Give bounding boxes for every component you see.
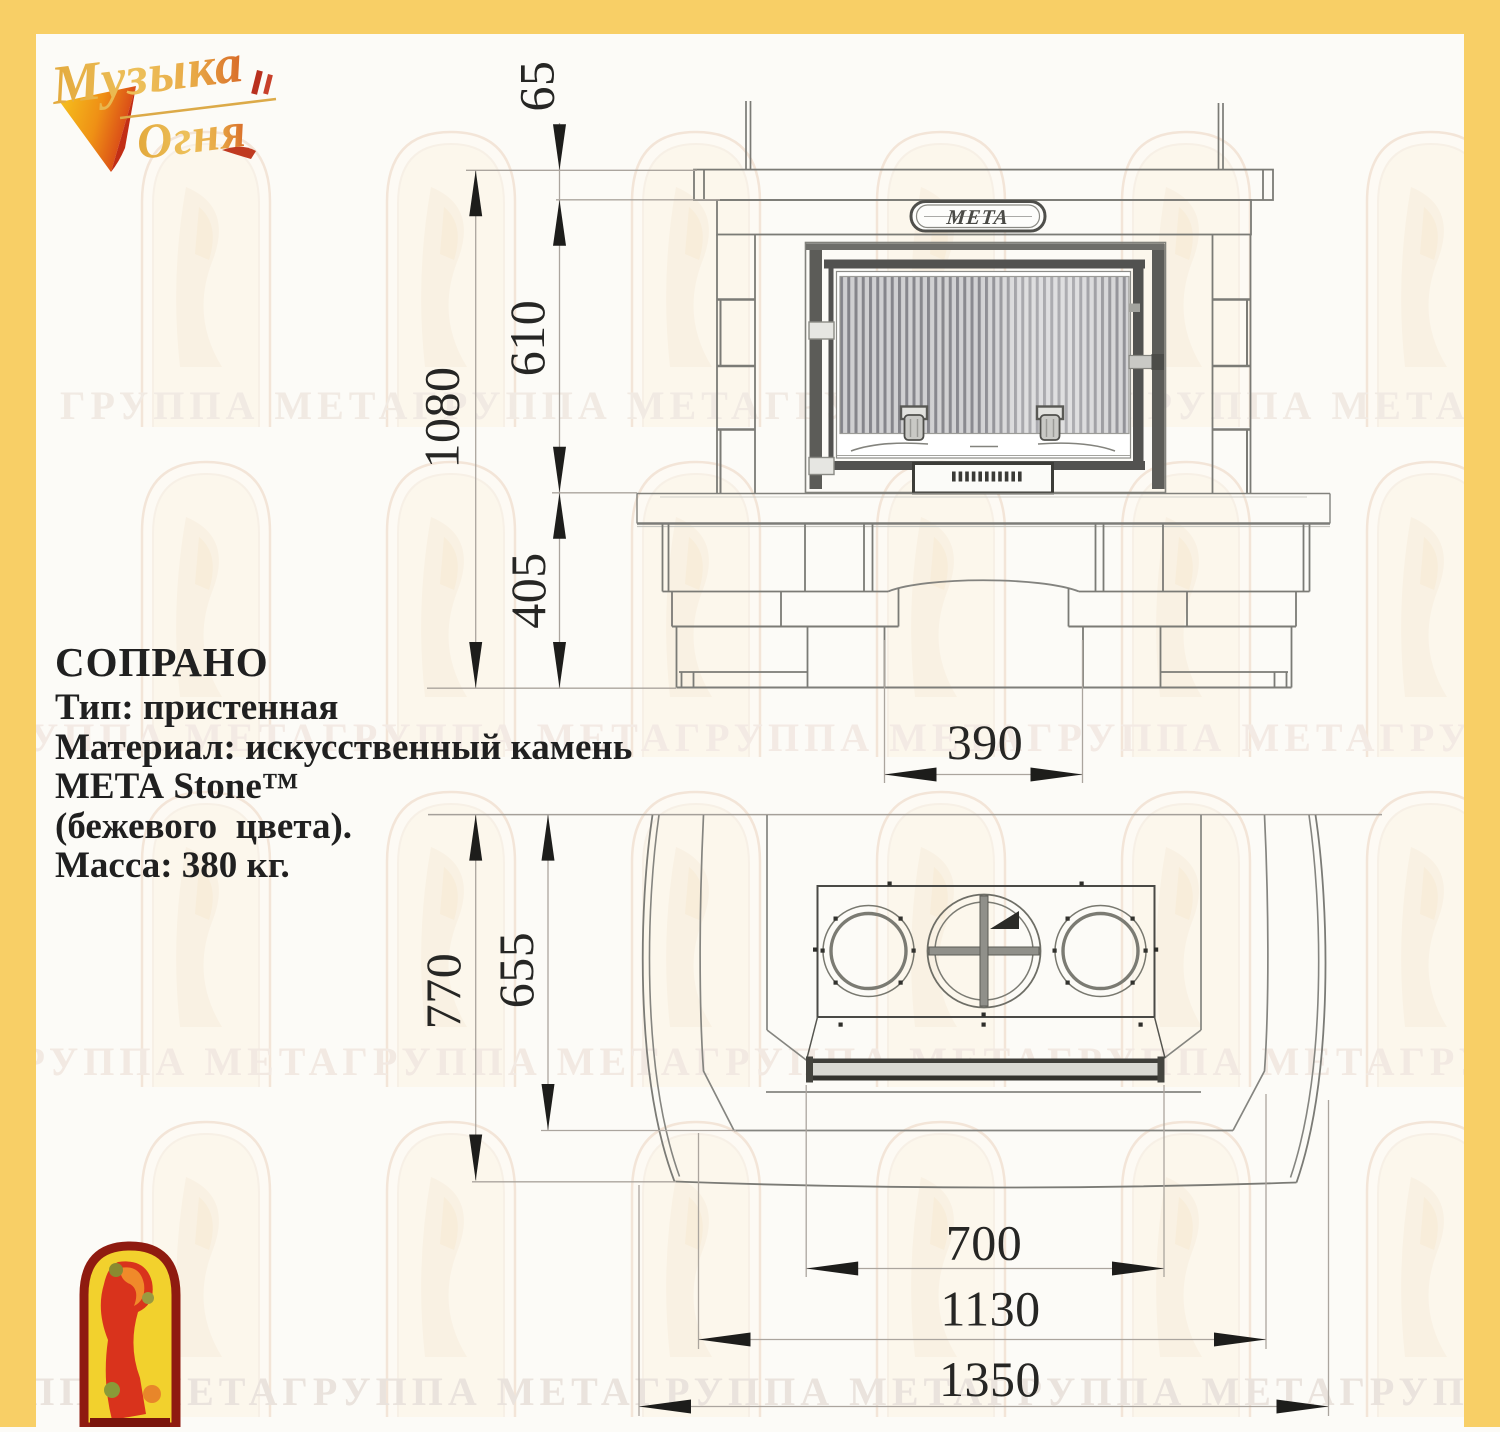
svg-text:390: 390	[947, 714, 1024, 770]
svg-text:ГРУППА МЕТАГРУППА МЕТАГРУППА М: ГРУППА МЕТАГРУППА МЕТАГРУППА МЕТАГРУППА …	[0, 1039, 1500, 1084]
svg-text:610: 610	[499, 300, 555, 377]
svg-text:655: 655	[488, 932, 544, 1009]
svg-text:700: 700	[946, 1215, 1023, 1271]
svg-text:1350: 1350	[939, 1351, 1041, 1407]
svg-text:1080: 1080	[414, 367, 470, 469]
svg-text:770: 770	[415, 953, 471, 1030]
svg-text:405: 405	[500, 552, 556, 629]
svg-text:ГРУППА МЕТАГРУППА МЕТАГРУППА М: ГРУППА МЕТАГРУППА МЕТАГРУППА МЕТАГРУППА …	[0, 1369, 1500, 1414]
svg-text:ГРУППА МЕТАГРУППА МЕТАГРУППА М: ГРУППА МЕТАГРУППА МЕТАГРУППА МЕТАГРУППА …	[60, 383, 1500, 428]
svg-text:МЕТА: МЕТА	[945, 205, 1011, 229]
svg-text:1130: 1130	[940, 1281, 1040, 1337]
svg-text:65: 65	[509, 61, 565, 112]
